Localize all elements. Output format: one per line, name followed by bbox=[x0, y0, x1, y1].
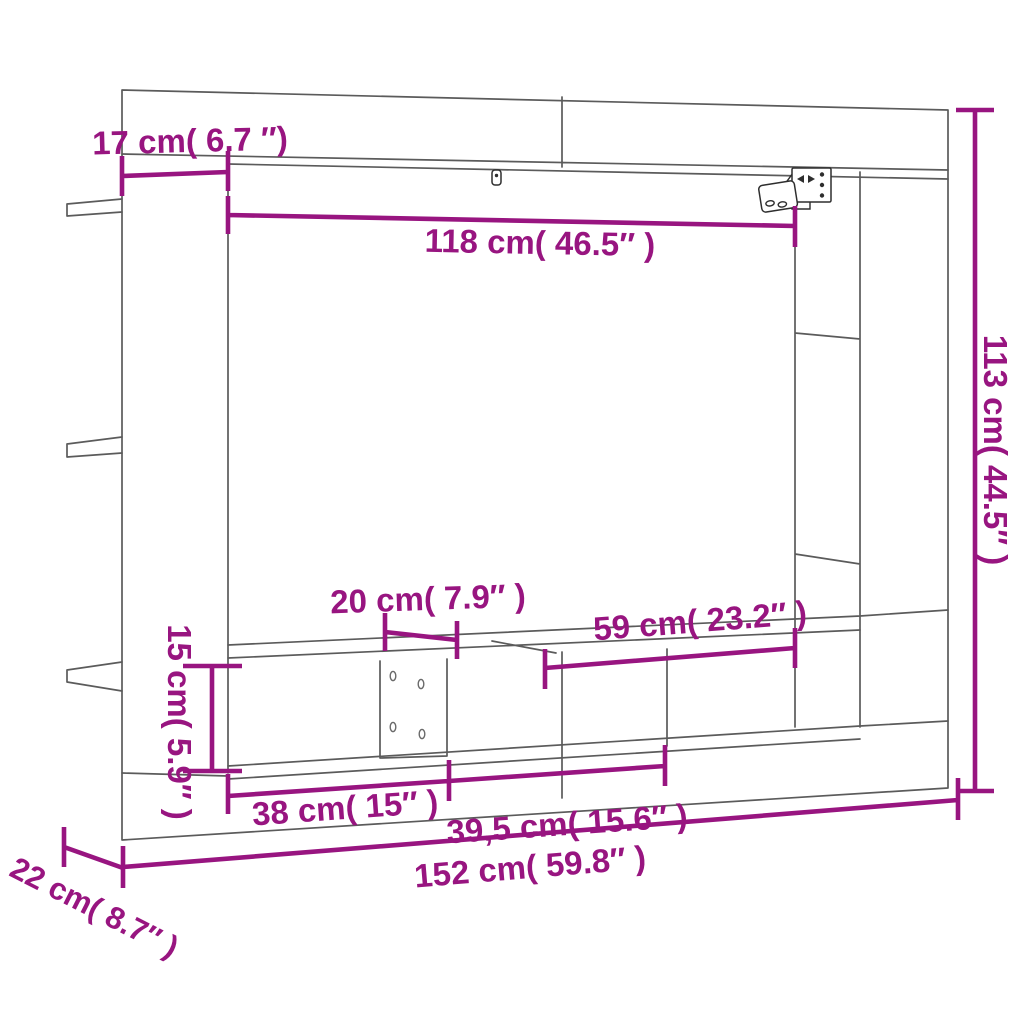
dimension-right-compartment-width: 59 cm( 23.2″ ) bbox=[545, 594, 808, 689]
dimension-middle-compartment-width: 39,5 cm( 15.6″ ) bbox=[445, 745, 688, 850]
keyhole-hanger-icon bbox=[492, 170, 501, 185]
dim-label-38cm: 38 cm( 15″ ) bbox=[251, 783, 440, 833]
dimension-opening-width: 118 cm( 46.5″ ) bbox=[228, 196, 795, 263]
dim-label-59cm: 59 cm( 23.2″ ) bbox=[592, 594, 808, 648]
dimension-total-depth: 22 cm( 8.7″ ) bbox=[5, 827, 185, 965]
dim-label-20cm: 20 cm( 7.9″ ) bbox=[330, 577, 527, 621]
dim-label-17cm: 17 cm( 6.7 ″) bbox=[92, 119, 288, 161]
dim-label-118cm: 118 cm( 46.5″ ) bbox=[424, 222, 655, 263]
dim-label-15cm: 15 cm( 5.9″ ) bbox=[161, 624, 198, 820]
dimension-total-height: 113 cm( 44.5″ ) bbox=[956, 110, 1014, 791]
wall-shelf-middle bbox=[67, 437, 122, 457]
wall-shelf-top bbox=[67, 199, 122, 216]
divider-holes bbox=[390, 671, 425, 738]
dimension-diagram: 17 cm( 6.7 ″) 118 cm( 46.5″ ) 113 cm( 44… bbox=[0, 0, 1024, 1024]
right-column bbox=[795, 172, 860, 727]
dimension-top-left-depth: 17 cm( 6.7 ″) bbox=[92, 119, 288, 196]
tv-unit-diagram-svg: 17 cm( 6.7 ″) 118 cm( 46.5″ ) 113 cm( 44… bbox=[0, 0, 1024, 1024]
wall-shelf-bottom bbox=[67, 662, 122, 691]
dim-label-22cm: 22 cm( 8.7″ ) bbox=[5, 850, 185, 965]
dim-label-113cm: 113 cm( 44.5″ ) bbox=[977, 335, 1014, 565]
